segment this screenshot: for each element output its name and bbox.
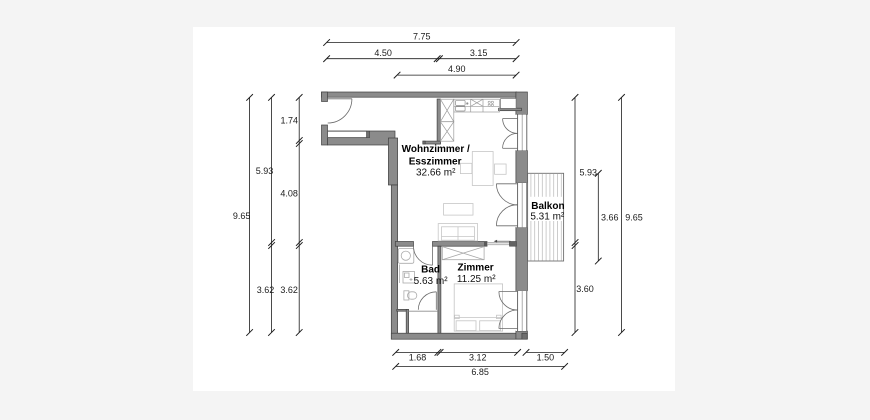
svg-text:5.31 m²: 5.31 m² — [530, 211, 565, 222]
svg-text:3.12: 3.12 — [469, 353, 487, 363]
svg-text:Zimmer: Zimmer — [458, 263, 494, 274]
svg-text:1.68: 1.68 — [409, 353, 427, 363]
svg-text:7.75: 7.75 — [413, 32, 431, 42]
svg-text:Esszimmer: Esszimmer — [409, 157, 462, 168]
svg-text:6.85: 6.85 — [471, 367, 489, 377]
svg-text:3.62: 3.62 — [257, 285, 275, 295]
svg-text:4.90: 4.90 — [448, 64, 466, 74]
svg-text:11.25 m²: 11.25 m² — [457, 274, 496, 285]
svg-text:9.65: 9.65 — [233, 211, 251, 221]
svg-text:Bad: Bad — [421, 264, 440, 275]
svg-text:9.65: 9.65 — [625, 212, 643, 222]
svg-text:3.15: 3.15 — [470, 48, 488, 58]
svg-text:3.62: 3.62 — [280, 285, 298, 295]
svg-text:4.08: 4.08 — [280, 189, 298, 199]
svg-text:4.50: 4.50 — [374, 48, 392, 58]
svg-text:1.50: 1.50 — [537, 353, 555, 363]
svg-text:32.66 m²: 32.66 m² — [416, 168, 456, 179]
svg-text:5.63 m²: 5.63 m² — [414, 276, 449, 287]
svg-text:5.93: 5.93 — [256, 166, 274, 176]
svg-text:5.93: 5.93 — [580, 168, 598, 178]
svg-text:3.66: 3.66 — [601, 212, 619, 222]
svg-text:3.60: 3.60 — [576, 284, 594, 294]
svg-text:1.74: 1.74 — [281, 115, 299, 125]
svg-text:Balkon: Balkon — [531, 201, 564, 212]
svg-text:Wohnzimmer /: Wohnzimmer / — [402, 144, 470, 155]
